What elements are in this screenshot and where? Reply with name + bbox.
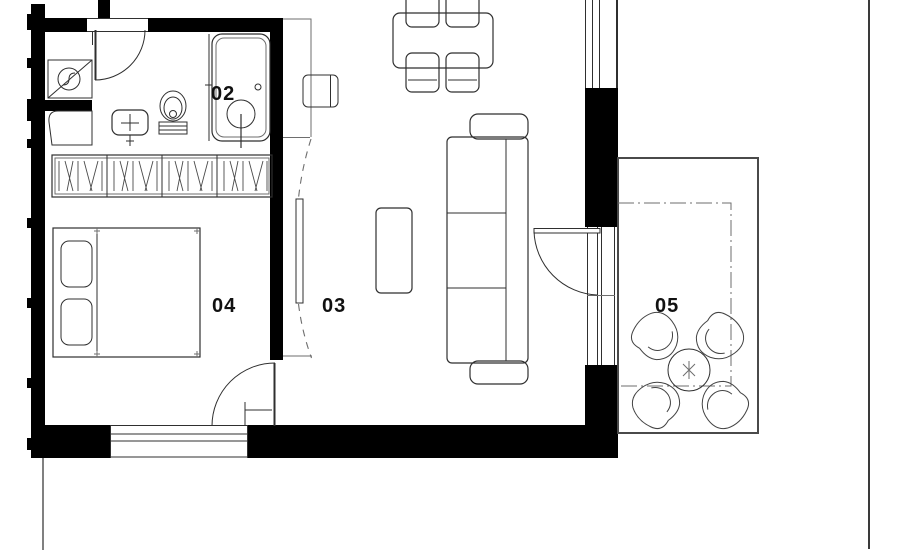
- hall-partition: [283, 19, 312, 358]
- terrace-chair: [692, 373, 755, 436]
- room-label-hall: 03: [322, 296, 346, 316]
- floor-plan-svg: [0, 0, 900, 550]
- bedroom-door: [212, 363, 275, 426]
- room-label-bedroom: 04: [212, 296, 236, 316]
- shower-faucet: [255, 84, 261, 90]
- dining-table: [393, 13, 493, 68]
- bed: [53, 228, 200, 357]
- terrace: [618, 158, 758, 436]
- washing-machine: [48, 60, 92, 98]
- pillow: [61, 241, 92, 287]
- terrace-door: [534, 227, 615, 365]
- dining-set: [393, 0, 493, 92]
- room-label-terrace: 05: [655, 296, 679, 316]
- wall-shelf: [303, 75, 338, 107]
- wall-insulation-nubs: [27, 14, 31, 450]
- terrace-table: [668, 349, 710, 391]
- bedroom-window: [110, 425, 248, 458]
- sink: [112, 110, 148, 146]
- wardrobe: [52, 155, 272, 197]
- site-boundary-lines: [43, 0, 869, 550]
- door-leaf: [534, 229, 600, 234]
- sofa-armrest: [470, 361, 528, 384]
- terrace-chair: [625, 372, 688, 435]
- sofa-armrest: [470, 114, 528, 139]
- floor-plan: 02 03 04 05: [0, 0, 900, 550]
- coffee-table: [376, 208, 412, 293]
- walls: [27, 0, 618, 458]
- sliding-door-panel: [296, 199, 303, 303]
- sofa: [447, 114, 528, 384]
- bathroom-entry-door: [87, 19, 148, 81]
- terrace-chair: [688, 306, 751, 369]
- bathroom-cabinet: [49, 111, 92, 145]
- room-label-bathroom: 02: [211, 84, 235, 104]
- pillow: [61, 299, 92, 345]
- umbrella-mark: [683, 361, 695, 379]
- toilet: [159, 91, 187, 134]
- right-window: [586, 0, 618, 88]
- dining-chair: [406, 53, 439, 92]
- dining-chair: [446, 53, 479, 92]
